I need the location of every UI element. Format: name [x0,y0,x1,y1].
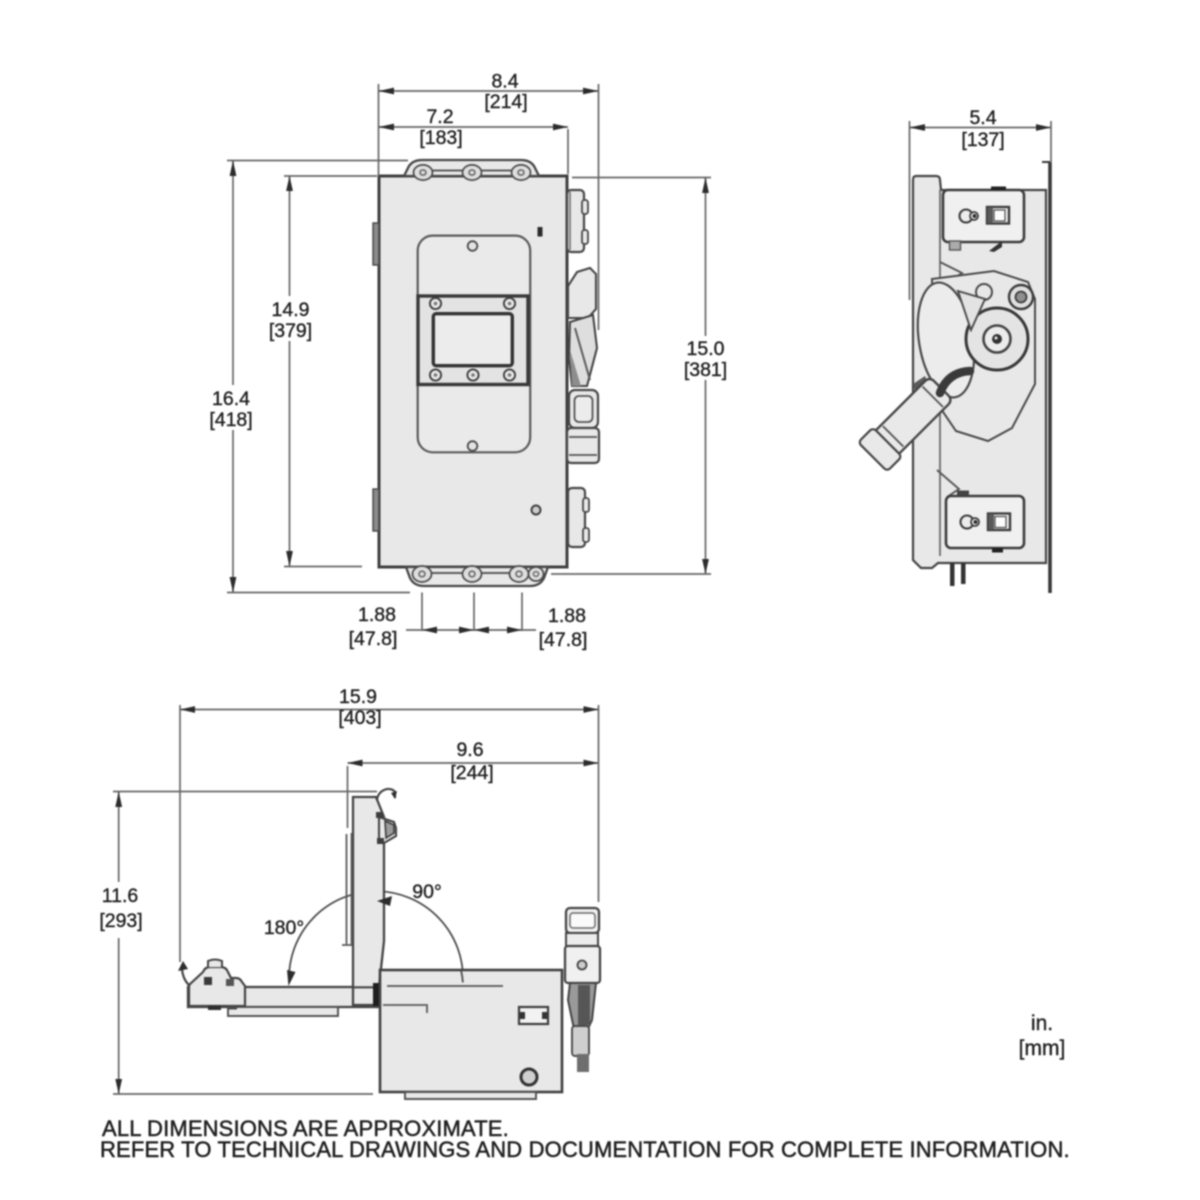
svg-text:in.: in. [1031,1012,1053,1035]
svg-text:5.4: 5.4 [969,107,996,129]
svg-text:[137]: [137] [961,129,1004,151]
svg-text:[403]: [403] [338,707,381,729]
svg-text:11.6: 11.6 [102,885,139,907]
svg-text:8.4: 8.4 [491,71,518,93]
svg-text:[183]: [183] [419,127,462,149]
svg-text:[47.8]: [47.8] [539,629,588,651]
svg-text:[mm]: [mm] [1019,1037,1066,1060]
svg-text:[244]: [244] [450,762,493,784]
svg-text:[214]: [214] [484,91,527,113]
svg-text:1.88: 1.88 [548,605,586,627]
svg-text:90°: 90° [412,881,442,903]
svg-text:REFER TO TECHNICAL DRAWINGS AN: REFER TO TECHNICAL DRAWINGS AND DOCUMENT… [100,1137,1070,1162]
svg-text:16.4: 16.4 [212,388,250,410]
svg-text:[293]: [293] [99,910,142,932]
svg-text:7.2: 7.2 [426,106,453,128]
svg-text:[379]: [379] [269,320,312,342]
svg-text:180°: 180° [264,917,304,939]
svg-text:[418]: [418] [209,409,252,431]
svg-text:14.9: 14.9 [272,299,310,321]
svg-text:15.0: 15.0 [687,338,725,360]
svg-text:15.9: 15.9 [339,686,377,708]
svg-text:[381]: [381] [684,359,727,381]
svg-text:1.88: 1.88 [358,604,396,626]
svg-text:9.6: 9.6 [456,739,483,761]
svg-text:[47.8]: [47.8] [349,628,398,650]
